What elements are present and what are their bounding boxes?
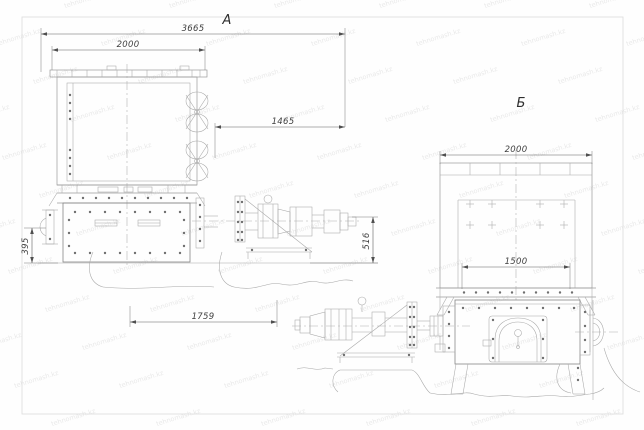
watermark-text: tehnomash.kz xyxy=(0,27,42,48)
watermark-text: tehnomash.kz xyxy=(637,255,644,276)
watermark-text: tehnomash.kz xyxy=(155,407,202,428)
watermark-text: tehnomash.kz xyxy=(0,331,23,352)
watermark-text: tehnomash.kz xyxy=(13,369,60,390)
sheet-border xyxy=(22,17,623,414)
watermark-text: tehnomash.kz xyxy=(600,217,644,238)
watermark-text: tehnomash.kz xyxy=(211,141,258,162)
view-b-label: Б xyxy=(517,96,526,111)
dim-right-offset: 1465 xyxy=(272,117,295,127)
watermark-text: tehnomash.kz xyxy=(254,293,301,314)
watermark-text: tehnomash.kz xyxy=(489,103,536,124)
watermark-text: tehnomash.kz xyxy=(1,141,48,162)
watermark-text: tehnomash.kz xyxy=(168,0,215,10)
hopper-front xyxy=(440,150,592,300)
watermark-text: tehnomash.kz xyxy=(50,407,97,428)
watermark-text: tehnomash.kz xyxy=(427,255,474,276)
view-a-label: А xyxy=(222,13,232,28)
technical-drawing: tehnomash.kztehnomash.kztehnomash.kztehn… xyxy=(0,0,644,430)
watermark-text: tehnomash.kz xyxy=(495,217,542,238)
watermark-text: tehnomash.kz xyxy=(557,65,604,86)
view-a-dimensions: А 3665 2000 1465 395 516 xyxy=(21,13,378,327)
dim-overall-width: 3665 xyxy=(182,24,205,34)
watermark-text: tehnomash.kz xyxy=(520,27,567,48)
watermark-text: tehnomash.kz xyxy=(625,27,644,48)
watermark-text: tehnomash.kz xyxy=(260,407,307,428)
watermark-text: tehnomash.kz xyxy=(588,0,635,10)
watermark-text: tehnomash.kz xyxy=(433,369,480,390)
watermark-text: tehnomash.kz xyxy=(526,141,573,162)
watermark-text: tehnomash.kz xyxy=(359,293,406,314)
watermark-text: tehnomash.kz xyxy=(631,141,644,162)
watermark-text: tehnomash.kz xyxy=(328,369,375,390)
breather-cap-b xyxy=(358,297,366,305)
watermark-text: tehnomash.kz xyxy=(606,331,644,352)
watermark-text: tehnomash.kz xyxy=(106,141,153,162)
drawing-canvas: tehnomash.kztehnomash.kztehnomash.kztehn… xyxy=(0,0,644,430)
watermark-text: tehnomash.kz xyxy=(384,103,431,124)
watermark-text: tehnomash.kz xyxy=(421,141,468,162)
door-handle xyxy=(515,330,522,337)
watermark-text: tehnomash.kz xyxy=(563,179,610,200)
watermark-text: tehnomash.kz xyxy=(38,179,85,200)
watermark-text: tehnomash.kz xyxy=(390,217,437,238)
door-latch xyxy=(483,340,491,346)
dim-bracket-height: 395 xyxy=(21,237,31,254)
watermark-text: tehnomash.kz xyxy=(69,103,116,124)
dim-shaft-height: 516 xyxy=(362,232,372,249)
watermark-text: tehnomash.kz xyxy=(118,369,165,390)
watermark-text: tehnomash.kz xyxy=(81,331,128,352)
view-a-machine xyxy=(38,64,378,288)
dim-hopper-width-b: 2000 xyxy=(505,145,528,155)
watermark-text: tehnomash.kz xyxy=(180,217,227,238)
watermark-text: tehnomash.kz xyxy=(44,293,91,314)
watermark-text: tehnomash.kz xyxy=(415,27,462,48)
watermark-text: tehnomash.kz xyxy=(205,27,252,48)
watermark-text: tehnomash.kz xyxy=(63,0,110,10)
watermark-text: tehnomash.kz xyxy=(285,217,332,238)
watermark-text: tehnomash.kz xyxy=(143,179,190,200)
watermark-text: tehnomash.kz xyxy=(347,65,394,86)
watermark-text: tehnomash.kz xyxy=(0,0,5,10)
watermark-text: tehnomash.kz xyxy=(273,0,320,10)
watermark-text: tehnomash.kz xyxy=(483,0,530,10)
watermark-text: tehnomash.kz xyxy=(532,255,579,276)
watermark-text: tehnomash.kz xyxy=(464,293,511,314)
body-front xyxy=(430,300,590,364)
watermark-text: tehnomash.kz xyxy=(458,179,505,200)
watermark-text: tehnomash.kz xyxy=(365,407,412,428)
watermark-text: tehnomash.kz xyxy=(452,65,499,86)
watermark-text: tehnomash.kz xyxy=(396,331,443,352)
watermark-text: tehnomash.kz xyxy=(0,103,11,124)
watermark-text: tehnomash.kz xyxy=(594,103,641,124)
breather-cap xyxy=(264,195,272,203)
watermark-text: tehnomash.kz xyxy=(149,293,196,314)
watermark-text: tehnomash.kz xyxy=(353,179,400,200)
watermark-text: tehnomash.kz xyxy=(310,27,357,48)
watermark-text: tehnomash.kz xyxy=(575,407,622,428)
watermark-text: tehnomash.kz xyxy=(242,65,289,86)
support-frame-b xyxy=(337,353,415,363)
watermark-text: tehnomash.kz xyxy=(112,255,159,276)
dim-base-length: 1759 xyxy=(192,312,215,322)
watermark-text: tehnomash.kz xyxy=(0,217,17,238)
watermark-text: tehnomash.kz xyxy=(217,255,264,276)
watermark-text: tehnomash.kz xyxy=(378,0,425,10)
watermark-text: tehnomash.kz xyxy=(223,369,270,390)
dim-hopper-width-a: 2000 xyxy=(117,40,140,50)
watermark-text: tehnomash.kz xyxy=(186,331,233,352)
dim-flange-span: 1500 xyxy=(505,257,528,267)
watermark-text: tehnomash.kz xyxy=(470,407,517,428)
watermark-text: tehnomash.kz xyxy=(322,255,369,276)
watermark-text: tehnomash.kz xyxy=(316,141,363,162)
